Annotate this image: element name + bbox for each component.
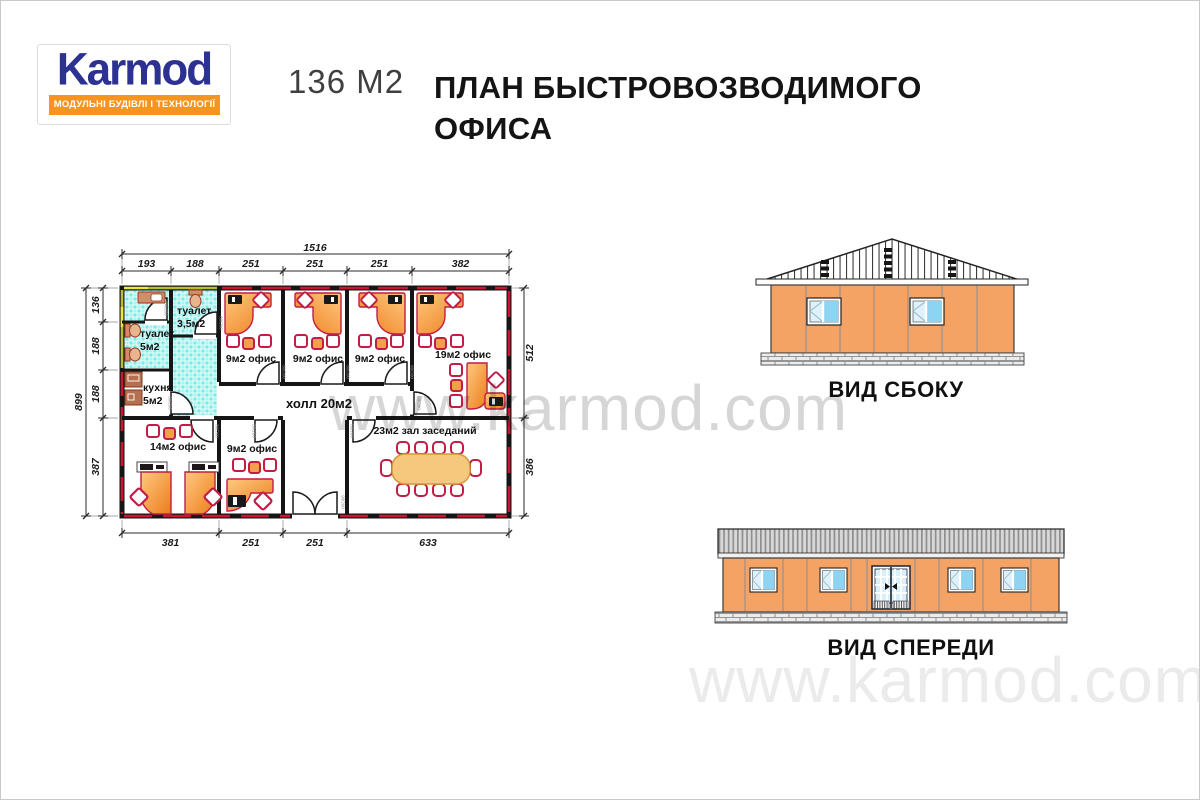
window: [1001, 568, 1028, 592]
front-walls: [723, 558, 1059, 612]
door-arc: [257, 362, 279, 384]
logo-brand-text: Karmod: [38, 46, 230, 94]
room-label-toilet-small: туалет: [177, 305, 211, 317]
room-label-toilet-small-size: 3,5м2: [177, 318, 205, 330]
office-desk-set: [227, 459, 276, 511]
door-arc: [353, 420, 375, 442]
room-label-office19: 19м2 офис: [435, 349, 491, 361]
logo-tagline-banner: МОДУЛЬНІ БУДІВЛІ І ТЕХНОЛОГІЇ: [49, 95, 220, 115]
office-desk-set: [295, 292, 341, 349]
room-label-toilet-big-size: 5м2: [140, 341, 160, 353]
page-title: ПЛАН БЫСТРОВОЗВОДИМОГО ОФИСА: [434, 67, 922, 149]
kitchen-counter-icon: [125, 372, 142, 405]
door-tag: 80/200: [168, 396, 173, 410]
toilet-icon: [125, 324, 141, 337]
dim-bottom-seg: 251: [305, 537, 324, 549]
dim-top-seg: 188: [186, 258, 204, 270]
door-arc: [191, 420, 213, 442]
window: [807, 298, 841, 325]
room-label-office9: 9м2 офис: [227, 443, 277, 455]
dim-left-seg: 387: [90, 457, 102, 476]
sink-basin-icon: [151, 294, 162, 301]
room-label-kitchen-size: 5м2: [143, 395, 163, 407]
door-tag: 80/200: [164, 302, 169, 316]
dim-right-seg: 512: [524, 344, 536, 362]
door-tag: 80/200: [252, 424, 257, 438]
window: [820, 568, 847, 592]
side-walls: [771, 285, 1014, 353]
entrance-double-door: [872, 566, 910, 609]
dim-top-seg: 251: [305, 258, 324, 270]
dim-bottom-seg: 633: [419, 537, 437, 549]
door-arc: [255, 420, 277, 442]
dim-top-seg: 193: [138, 258, 156, 270]
office-desk-set: [359, 292, 405, 349]
dim-left-total: 899: [73, 393, 85, 411]
room-label-meeting: 23м2 зал заседаний: [373, 425, 476, 437]
flat-roof-band: [718, 529, 1064, 558]
conference-table-set: [381, 442, 481, 496]
gable-roof: [751, 237, 1041, 285]
door-tag: 80/200: [219, 316, 224, 330]
area-size-label: 136 М2: [288, 63, 404, 101]
dim-left-seg: 136: [90, 296, 102, 314]
toilet-icon: [125, 348, 141, 361]
dim-top-seg: 251: [370, 258, 389, 270]
dim-top-total: 1516: [303, 242, 327, 254]
room-label-office14: 14м2 офис: [150, 441, 206, 453]
office-desk-set: [450, 363, 505, 409]
room-label-toilet-big: туалет: [140, 328, 174, 340]
page: Karmod МОДУЛЬНІ БУДІВЛІ І ТЕХНОЛОГІЇ 136…: [0, 0, 1200, 800]
door-tag: 80/200: [282, 365, 287, 379]
foundation: [715, 612, 1067, 623]
page-title-line2: ОФИСА: [434, 108, 922, 149]
door-arc: [385, 362, 407, 384]
office-desk-set: [225, 292, 271, 349]
door-tag: 80/200: [417, 396, 422, 410]
dim-left-seg: 188: [90, 337, 102, 355]
floor-plan-drawing: 80/200 80/200 80/200 80/200 80/200 80/20…: [71, 233, 551, 558]
window: [948, 568, 975, 592]
dim-top-seg: 382: [452, 258, 470, 270]
foundation: [761, 353, 1024, 365]
room-label-office9: 9м2 офис: [293, 353, 343, 365]
door-tag: 80/200: [215, 424, 220, 438]
side-view-label: ВИД СБОКУ: [746, 377, 1046, 403]
office-desk-set: [417, 292, 463, 349]
dim-right-seg: 386: [524, 458, 536, 476]
door-tag: 80/200: [346, 365, 351, 379]
room-label-hall: холл 20м2: [286, 396, 352, 411]
window: [910, 298, 944, 325]
dim-bottom-seg: 381: [162, 537, 180, 549]
dim-left-seg: 188: [90, 385, 102, 403]
entrance-door-arc: [293, 492, 315, 514]
room-label-office9: 9м2 офис: [355, 353, 405, 365]
karmod-logo: Karmod МОДУЛЬНІ БУДІВЛІ І ТЕХНОЛОГІЇ: [37, 44, 231, 125]
entrance-door-tag: 90/200: [341, 495, 346, 509]
front-view-label: ВИД СПЕРЕДИ: [741, 635, 1081, 661]
window: [750, 568, 777, 592]
room-label-office9: 9м2 офис: [226, 353, 276, 365]
room-label-kitchen: кухня: [143, 382, 173, 394]
dim-top-seg: 251: [241, 258, 260, 270]
door-arc: [321, 362, 343, 384]
page-title-line1: ПЛАН БЫСТРОВОЗВОДИМОГО: [434, 67, 922, 108]
door-tag: 80/200: [350, 424, 355, 438]
entrance-door-arc: [315, 492, 337, 514]
dim-bottom-seg: 251: [241, 537, 260, 549]
door-tag: 80/200: [410, 365, 415, 379]
